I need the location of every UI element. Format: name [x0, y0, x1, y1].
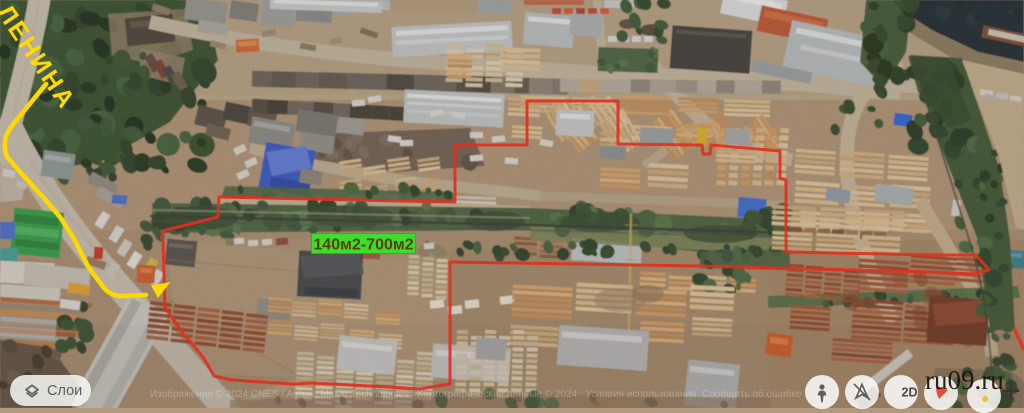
- svg-text:140м2-700м2: 140м2-700м2: [313, 237, 413, 254]
- svg-text:2D: 2D: [902, 386, 918, 400]
